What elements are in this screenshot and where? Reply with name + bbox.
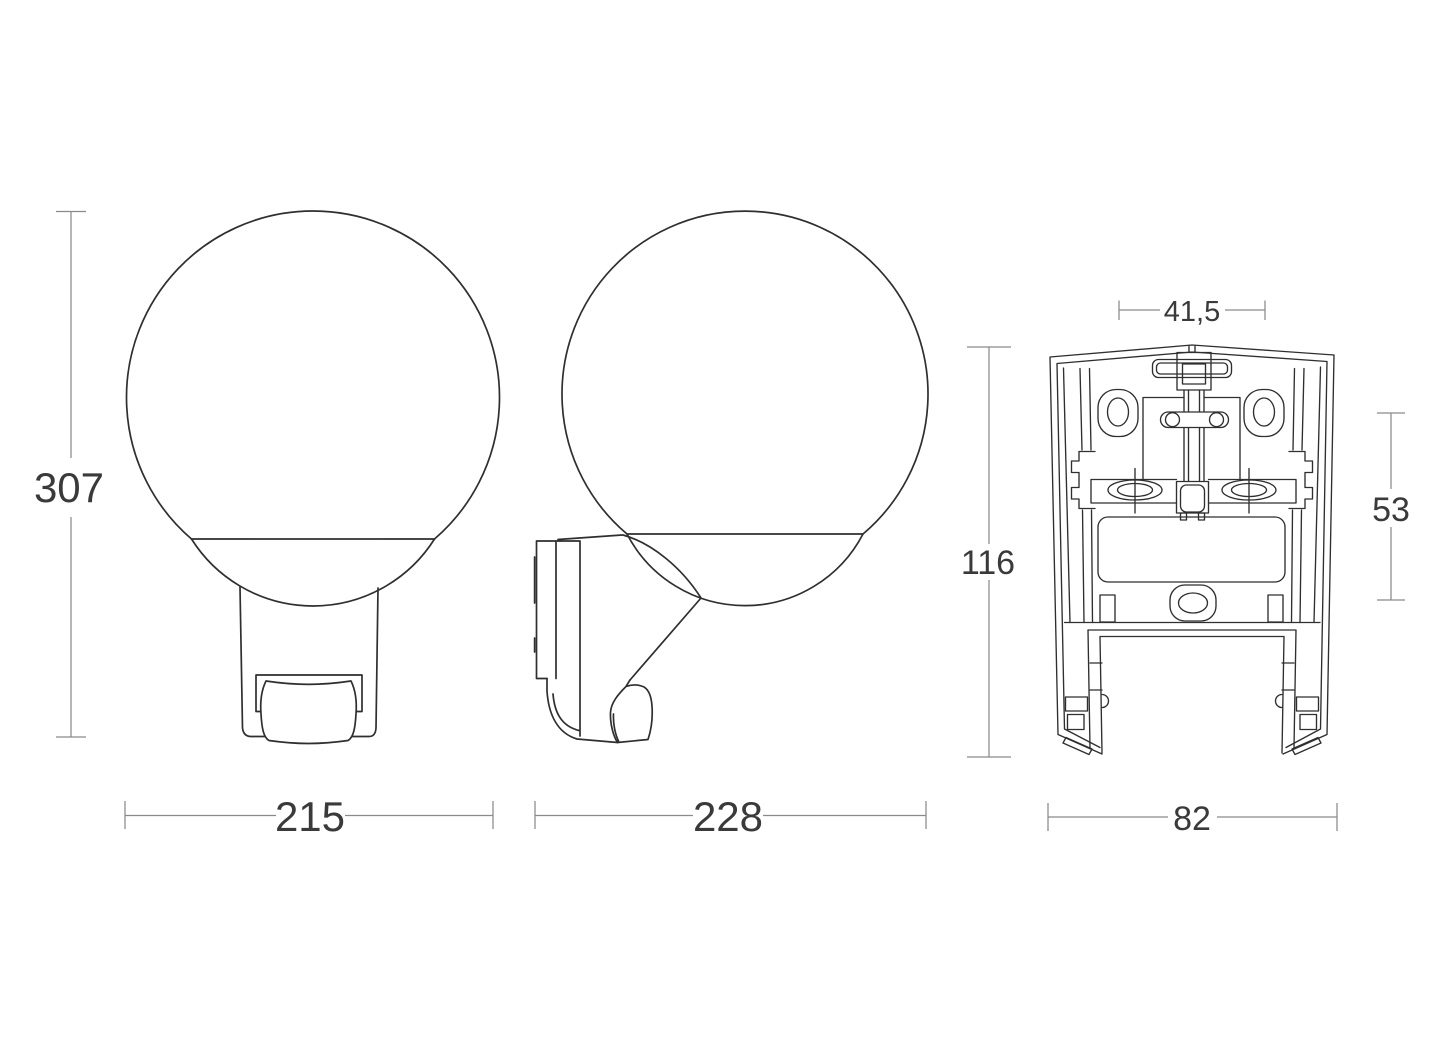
front-dim-width-label: 215 [275,793,345,840]
rear-dim-width: 82 [1048,800,1337,838]
rear-keyhole-left-outer [1098,390,1138,437]
front-sensor-lens [261,681,357,744]
rear-keyhole-right-outer [1244,390,1284,437]
side-arm-outline [623,535,701,680]
side-bracket-hook [547,679,618,743]
rear-terminal-box [1098,517,1285,582]
rear-outer-contour [1050,345,1334,754]
rear-top-seam [1189,346,1195,353]
rear-dim-width-label: 82 [1173,800,1211,838]
rear-pocket-left-lower [1068,715,1085,730]
rear-channel-rungs [1090,663,1294,690]
rear-keyhole-right-inner [1254,398,1275,426]
rear-plate-wall-right [1292,369,1305,623]
rear-hanger-rails [1184,390,1204,481]
front-dim-width: 215 [125,793,493,840]
rear-shelf-band [1091,480,1296,504]
rear-pocket-left-upper [1066,697,1088,711]
rear-side-slot-right [1268,595,1283,622]
rear-wall-edge-lines [1064,367,1321,623]
rear-dim-side-offset-label: 53 [1372,491,1410,529]
rear-channel [1088,630,1296,753]
side-view: 228 [535,211,928,840]
rear-side-slot-left [1100,595,1115,622]
rear-center-platform [1143,398,1240,480]
rear-view: 41,5 116 53 82 [961,296,1410,838]
side-wall-plate [535,535,622,736]
front-dim-height: 307 [34,212,104,738]
rear-dim-hole-spacing-label: 41,5 [1164,296,1220,328]
side-collar-arc [627,534,863,606]
front-collar-arc [192,539,435,606]
dimension-drawing: 307 215 228 [0,0,1445,1040]
rear-bottom-slot-left [1063,738,1092,755]
front-globe-outline [127,211,500,539]
rear-cable-entry-inner [1179,593,1208,613]
rear-strain-relief-right-lobe [1210,413,1224,427]
rear-bottom-slot-right [1292,738,1321,755]
rear-dim-side-offset: 53 [1372,413,1410,600]
drawing-svg: 307 215 228 [0,0,1445,1040]
rear-keyhole-left-inner [1108,398,1129,426]
rear-cable-entry-outer [1170,585,1216,621]
rear-cable-clamp-inner [1181,485,1205,512]
side-globe-outline [562,211,928,534]
rear-dim-height-label: 116 [961,544,1015,582]
side-sensor-housing [610,680,652,743]
rear-dim-height: 116 [961,347,1015,757]
rear-strain-relief-bar [1161,412,1229,428]
front-dim-height-label: 307 [34,464,104,511]
side-dim-width-label: 228 [693,793,763,840]
rear-channel-bumps [1102,695,1282,708]
rear-hanger-bar-outer [1153,360,1232,378]
rear-strain-relief-left-lobe [1166,413,1180,427]
front-view: 307 215 [34,211,500,840]
side-dim-width: 228 [535,793,926,840]
rear-pocket-right-lower [1300,715,1317,730]
rear-dim-hole-spacing: 41,5 [1119,296,1265,328]
rear-pocket-right-upper [1297,697,1319,711]
